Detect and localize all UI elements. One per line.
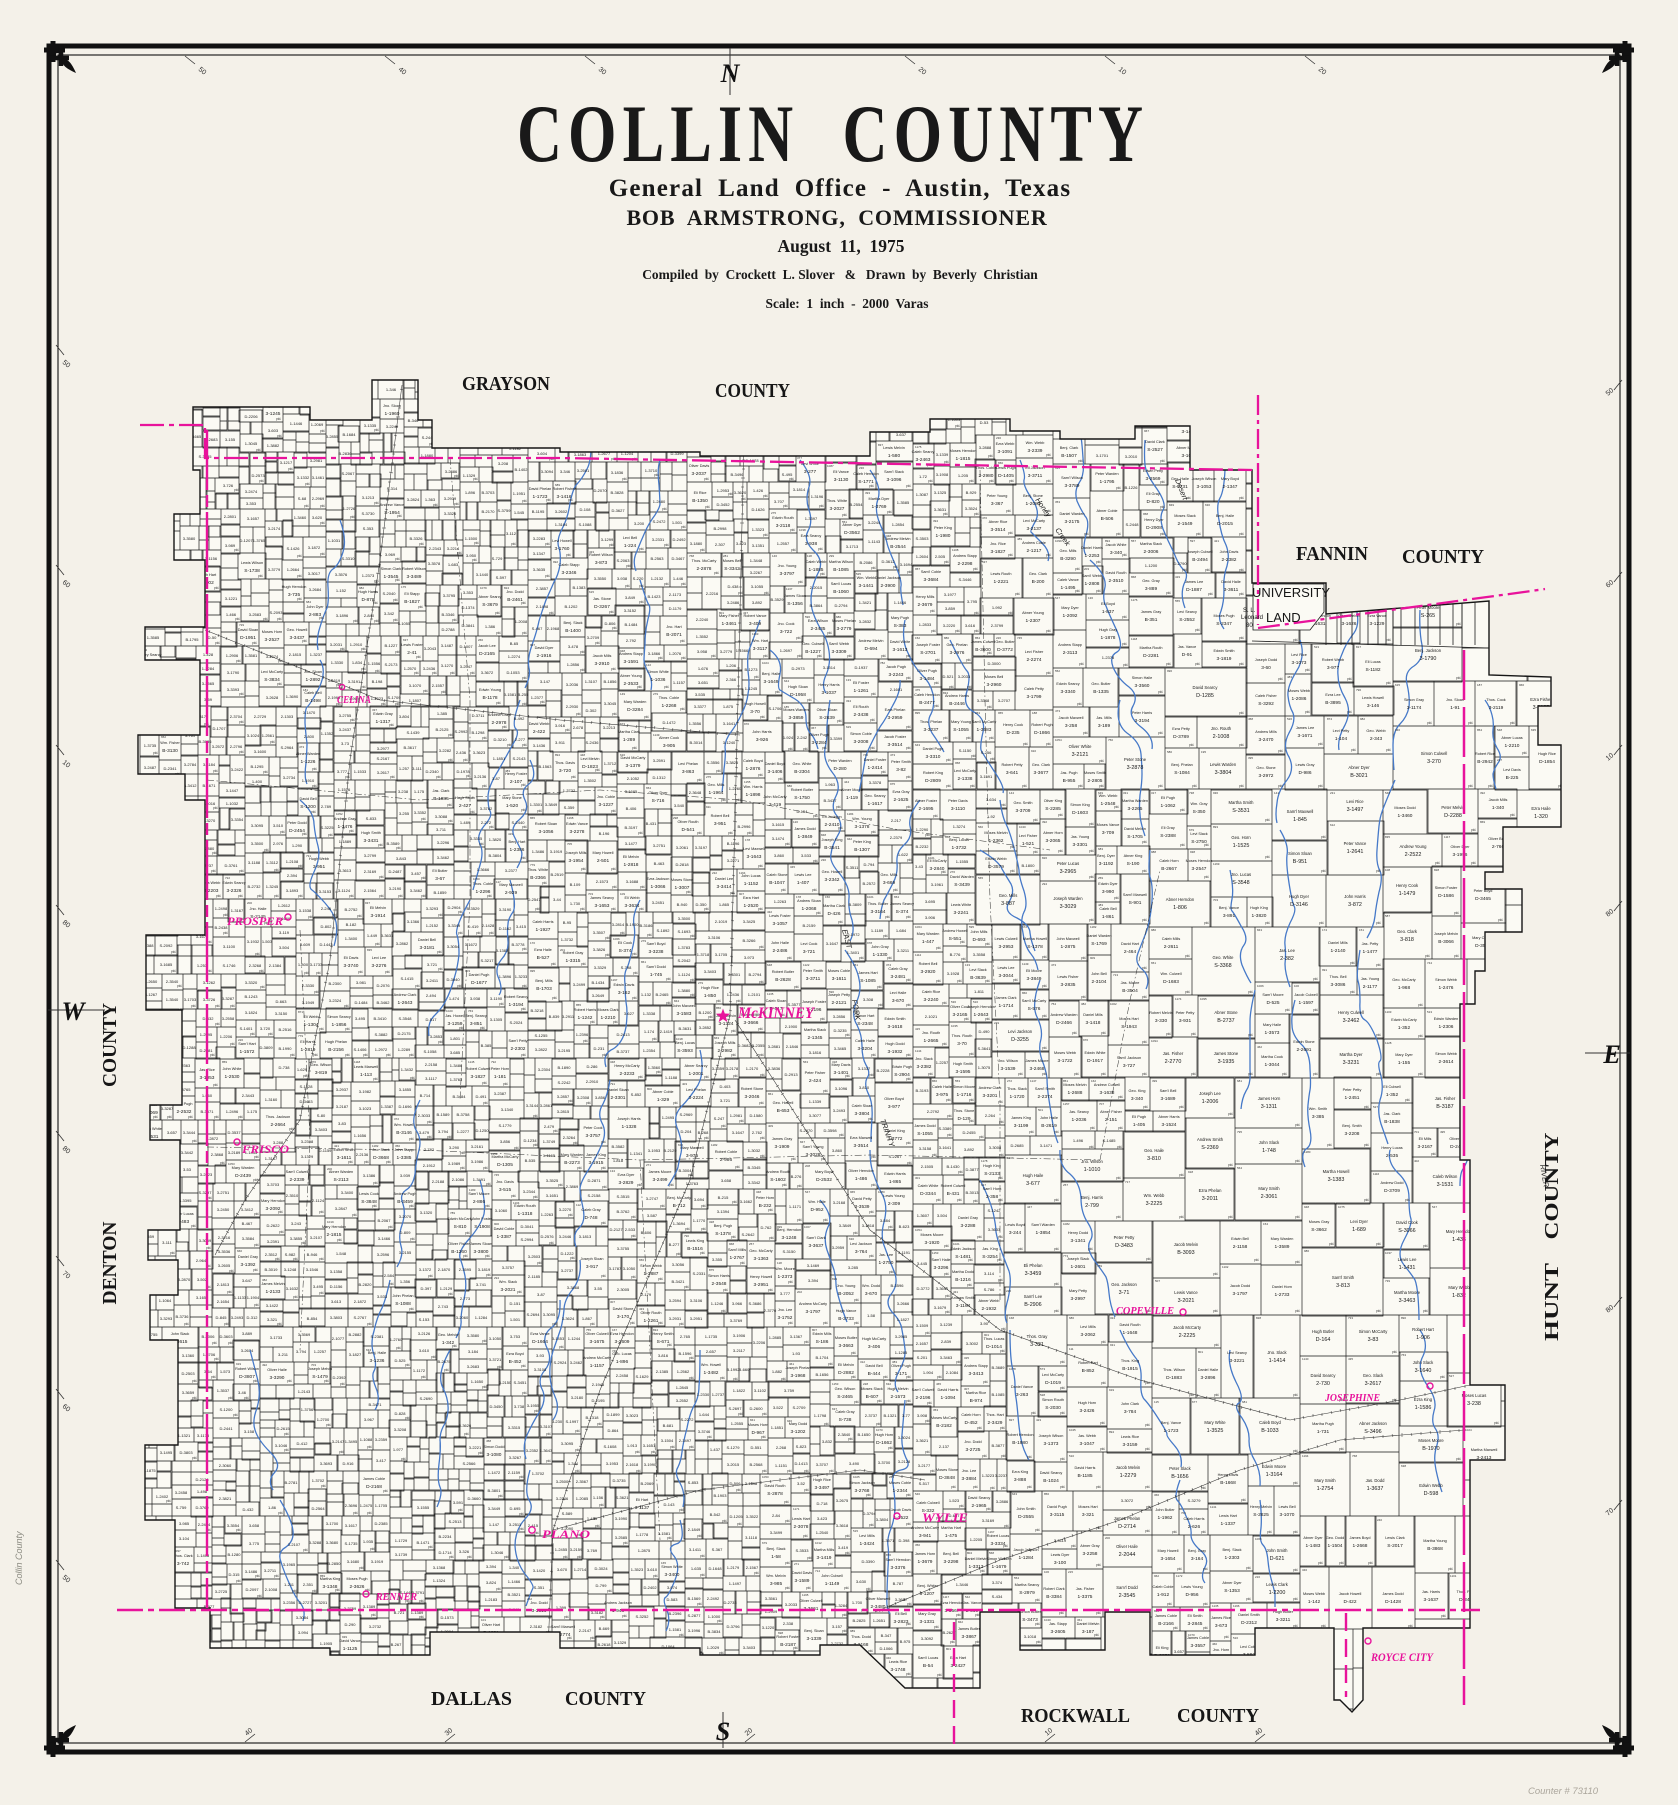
svg-text:Hugh King: Hugh King bbox=[1250, 906, 1268, 910]
svg-text:ptd.: ptd. bbox=[877, 985, 882, 989]
svg-text:D-864: D-864 bbox=[608, 1428, 620, 1433]
svg-text:1-3432: 1-3432 bbox=[401, 1067, 414, 1072]
svg-text:1-1827: 1-1827 bbox=[897, 1317, 910, 1322]
svg-text:ptd.: ptd. bbox=[987, 705, 992, 709]
svg-text:D-432: D-432 bbox=[243, 1507, 255, 1512]
svg-text:B-1402: B-1402 bbox=[515, 467, 529, 472]
svg-text:Jno. Routh: Jno. Routh bbox=[922, 1031, 940, 1035]
svg-text:ptd.: ptd. bbox=[1295, 1260, 1300, 1264]
svg-text:ptd.: ptd. bbox=[253, 1379, 258, 1383]
svg-text:Caleb Fisher: Caleb Fisher bbox=[1255, 694, 1277, 698]
svg-text:3-2331: 3-2331 bbox=[652, 537, 665, 542]
svg-text:ptd.: ptd. bbox=[1116, 1215, 1121, 1219]
svg-text:3-888: 3-888 bbox=[1014, 1477, 1027, 1483]
svg-text:3-3290: 3-3290 bbox=[270, 1375, 285, 1381]
svg-text:Sam'l Maxwell: Sam'l Maxwell bbox=[1123, 893, 1147, 897]
svg-text:3-2426: 3-2426 bbox=[1080, 1408, 1095, 1414]
svg-text:Martha Dyer: Martha Dyer bbox=[869, 497, 891, 501]
svg-text:366: 366 bbox=[1154, 1493, 1159, 1497]
svg-text:ptd.: ptd. bbox=[519, 1527, 524, 1531]
svg-text:1-3607: 1-3607 bbox=[917, 1213, 930, 1218]
svg-text:ptd.: ptd. bbox=[1122, 615, 1127, 619]
svg-text:525: 525 bbox=[856, 572, 861, 576]
svg-text:2-782: 2-782 bbox=[424, 1147, 435, 1152]
svg-text:3-1863: 3-1863 bbox=[574, 452, 587, 457]
svg-text:955: 955 bbox=[998, 711, 1003, 715]
svg-text:B-3006: B-3006 bbox=[202, 1334, 216, 1339]
svg-text:3-3463: 3-3463 bbox=[940, 1355, 953, 1360]
svg-text:1168: 1168 bbox=[567, 816, 574, 820]
svg-text:3-495: 3-495 bbox=[355, 1016, 366, 1021]
svg-text:3-1989: 3-1989 bbox=[448, 1161, 461, 1166]
svg-text:3-1949: 3-1949 bbox=[302, 1000, 315, 1005]
svg-text:ptd.: ptd. bbox=[486, 1273, 491, 1277]
svg-text:3-3320: 3-3320 bbox=[245, 980, 258, 985]
svg-text:3-3211: 3-3211 bbox=[1276, 1617, 1291, 1623]
svg-text:ptd.: ptd. bbox=[937, 1673, 942, 1677]
svg-text:3-3663: 3-3663 bbox=[839, 1343, 854, 1349]
svg-text:3-3557: 3-3557 bbox=[1191, 1643, 1206, 1649]
svg-text:S-823: S-823 bbox=[796, 1444, 807, 1449]
svg-text:D-3450: D-3450 bbox=[489, 1404, 503, 1409]
svg-text:B-2182: B-2182 bbox=[936, 1423, 952, 1429]
svg-text:ptd.: ptd. bbox=[758, 864, 763, 868]
svg-text:Martha Routh: Martha Routh bbox=[1139, 646, 1162, 650]
svg-text:3-905: 3-905 bbox=[663, 743, 676, 749]
svg-text:Benj. Searcy: Benj. Searcy bbox=[465, 1014, 487, 1018]
svg-text:Jno. Sloan: Jno. Sloan bbox=[304, 670, 322, 674]
svg-text:B-2465: B-2465 bbox=[656, 992, 670, 997]
svg-text:3-3580: 3-3580 bbox=[467, 1333, 480, 1338]
svg-text:178: 178 bbox=[745, 838, 750, 842]
svg-text:John Mills: John Mills bbox=[971, 930, 988, 934]
svg-text:3-722: 3-722 bbox=[780, 629, 793, 635]
svg-text:S-759: S-759 bbox=[176, 1505, 187, 1510]
svg-text:ptd.: ptd. bbox=[1213, 1272, 1218, 1276]
svg-text:S-1943: S-1943 bbox=[1121, 1024, 1137, 1030]
svg-text:B-3521: B-3521 bbox=[508, 1592, 522, 1597]
svg-text:Thos. McCarty: Thos. McCarty bbox=[692, 559, 717, 563]
svg-text:Daniel Warden: Daniel Warden bbox=[1087, 934, 1112, 938]
svg-text:Thos. Jackson: Thos. Jackson bbox=[266, 1115, 290, 1119]
svg-text:Mary Boyd: Mary Boyd bbox=[1221, 477, 1239, 481]
svg-text:651: 651 bbox=[1151, 961, 1156, 965]
svg-text:ptd.: ptd. bbox=[534, 1409, 539, 1413]
svg-text:B-1196: B-1196 bbox=[727, 841, 740, 846]
svg-text:3-1420: 3-1420 bbox=[533, 1568, 546, 1573]
svg-text:ptd.: ptd. bbox=[568, 1099, 573, 1103]
svg-text:3-1518: 3-1518 bbox=[862, 1223, 875, 1228]
svg-text:D-419: D-419 bbox=[468, 924, 480, 929]
svg-text:3-342: 3-342 bbox=[384, 611, 395, 616]
svg-text:ptd.: ptd. bbox=[760, 1154, 765, 1158]
svg-text:James Gray: James Gray bbox=[1141, 610, 1162, 614]
svg-text:Caleb Harris: Caleb Harris bbox=[532, 920, 553, 924]
svg-text:Robert Lucas: Robert Lucas bbox=[987, 1534, 1010, 1538]
svg-text:1-174: 1-174 bbox=[644, 1029, 655, 1034]
svg-text:3-290: 3-290 bbox=[449, 1145, 460, 1150]
svg-text:2-792: 2-792 bbox=[626, 638, 637, 643]
svg-text:B-2752: B-2752 bbox=[345, 907, 359, 912]
svg-text:ptd.: ptd. bbox=[759, 980, 764, 984]
svg-text:3-1484: 3-1484 bbox=[920, 676, 935, 682]
svg-text:ptd.: ptd. bbox=[877, 1399, 882, 1403]
svg-text:3-1908: 3-1908 bbox=[936, 472, 949, 477]
svg-text:Jacob Mills: Jacob Mills bbox=[1489, 798, 1508, 802]
svg-text:B-3462: B-3462 bbox=[377, 1000, 391, 1005]
svg-text:Oliver Haile: Oliver Haile bbox=[1116, 1544, 1138, 1549]
svg-text:Robert Hart: Robert Hart bbox=[1078, 1361, 1099, 1365]
svg-text:ptd.: ptd. bbox=[601, 1274, 606, 1278]
svg-text:ptd.: ptd. bbox=[1000, 1349, 1005, 1353]
svg-text:Edwin Smith: Edwin Smith bbox=[884, 1017, 905, 1021]
svg-text:Moses Pugh: Moses Pugh bbox=[346, 1577, 367, 1581]
svg-text:Daniel Boyd: Daniel Boyd bbox=[765, 762, 785, 766]
svg-text:3-1790: 3-1790 bbox=[227, 670, 240, 675]
svg-text:ptd.: ptd. bbox=[339, 1450, 344, 1454]
svg-text:3-2167: 3-2167 bbox=[1418, 1144, 1433, 1150]
svg-text:Abner Moore: Abner Moore bbox=[841, 788, 863, 792]
svg-text:D-2168: D-2168 bbox=[366, 1484, 382, 1490]
svg-text:1-2306: 1-2306 bbox=[1439, 1024, 1454, 1030]
svg-text:1-2263: 1-2263 bbox=[774, 899, 787, 904]
svg-text:3-1080: 3-1080 bbox=[487, 1452, 502, 1458]
svg-text:ptd.: ptd. bbox=[658, 1321, 663, 1325]
svg-text:643: 643 bbox=[915, 743, 920, 747]
svg-text:ptd.: ptd. bbox=[595, 1524, 600, 1528]
svg-text:Abner Young: Abner Young bbox=[1022, 611, 1044, 615]
svg-text:2-464: 2-464 bbox=[1124, 949, 1137, 955]
svg-text:1024: 1024 bbox=[762, 661, 769, 665]
svg-text:S-3593: S-3593 bbox=[677, 1048, 693, 1054]
svg-text:3-3412: 3-3412 bbox=[241, 1207, 254, 1212]
svg-text:ptd.: ptd. bbox=[421, 817, 426, 821]
svg-text:ptd.: ptd. bbox=[521, 783, 526, 787]
svg-text:3-981: 3-981 bbox=[356, 980, 367, 985]
svg-text:1-2008: 1-2008 bbox=[515, 619, 528, 624]
svg-text:D-809: D-809 bbox=[400, 1230, 412, 1235]
svg-text:B-1060: B-1060 bbox=[833, 589, 849, 595]
svg-text:ptd.: ptd. bbox=[213, 1083, 218, 1087]
svg-text:3-2499: 3-2499 bbox=[573, 982, 586, 987]
svg-text:John McCarty: John McCarty bbox=[763, 795, 787, 799]
svg-text:Moses Bell: Moses Bell bbox=[723, 559, 742, 563]
svg-text:D-151: D-151 bbox=[510, 1301, 522, 1306]
svg-text:Jno. Rice: Jno. Rice bbox=[990, 542, 1006, 546]
svg-text:3-3342: 3-3342 bbox=[748, 1180, 761, 1185]
svg-text:Joseph Phelan: Joseph Phelan bbox=[785, 1366, 810, 1370]
svg-text:ptd.: ptd. bbox=[483, 1166, 488, 1170]
svg-text:B-2170: B-2170 bbox=[482, 509, 496, 514]
svg-text:ptd.: ptd. bbox=[1293, 1597, 1298, 1601]
svg-text:ptd.: ptd. bbox=[804, 1488, 809, 1492]
svg-text:3-522: 3-522 bbox=[773, 1405, 784, 1410]
svg-text:3-1797: 3-1797 bbox=[806, 1309, 821, 1315]
svg-text:S-2767: S-2767 bbox=[354, 1315, 368, 1320]
svg-text:D-3809: D-3809 bbox=[259, 1045, 273, 1050]
svg-text:ptd.: ptd. bbox=[489, 825, 494, 829]
svg-text:ptd.: ptd. bbox=[533, 1114, 538, 1118]
svg-text:Sam'l Culwell: Sam'l Culwell bbox=[912, 1388, 935, 1392]
svg-text:2-3737: 2-3737 bbox=[865, 1413, 878, 1418]
svg-text:3-321: 3-321 bbox=[1082, 1512, 1095, 1518]
svg-text:B-2052: B-2052 bbox=[838, 1291, 854, 1297]
svg-text:1-865: 1-865 bbox=[719, 902, 730, 907]
svg-text:1-152: 1-152 bbox=[336, 588, 347, 593]
svg-text:460: 460 bbox=[1212, 1642, 1217, 1646]
svg-text:Geo. Mills: Geo. Mills bbox=[1060, 549, 1077, 553]
svg-text:ptd.: ptd. bbox=[390, 775, 395, 779]
svg-text:1-1815: 1-1815 bbox=[956, 456, 971, 462]
svg-text:3-1368: 3-1368 bbox=[433, 1565, 446, 1570]
svg-text:3-2886: 3-2886 bbox=[996, 1499, 1009, 1504]
svg-text:S-2158: S-2158 bbox=[588, 1193, 602, 1198]
svg-text:D-2714: D-2714 bbox=[1118, 1524, 1136, 1530]
svg-text:698: 698 bbox=[778, 1631, 783, 1635]
svg-text:ptd.: ptd. bbox=[223, 931, 228, 935]
svg-text:3-863: 3-863 bbox=[682, 769, 695, 775]
svg-text:ptd.: ptd. bbox=[293, 1295, 298, 1299]
svg-text:2-1505: 2-1505 bbox=[921, 1164, 934, 1169]
svg-text:1-156: 1-156 bbox=[593, 1495, 604, 1500]
svg-text:3-3514: 3-3514 bbox=[991, 527, 1006, 533]
svg-text:ROCKWALL: ROCKWALL bbox=[1021, 1705, 1130, 1727]
svg-text:D-3682: D-3682 bbox=[737, 1043, 751, 1048]
svg-text:970: 970 bbox=[744, 722, 749, 726]
svg-text:ptd.: ptd. bbox=[1166, 591, 1171, 595]
svg-text:ptd.: ptd. bbox=[1075, 567, 1080, 571]
svg-text:D-2076: D-2076 bbox=[376, 983, 390, 988]
svg-text:1-3315: 1-3315 bbox=[566, 958, 581, 964]
svg-text:David Searcy: David Searcy bbox=[1311, 1373, 1337, 1378]
svg-text:2-3119: 2-3119 bbox=[1054, 1538, 1067, 1543]
svg-text:1178: 1178 bbox=[981, 1159, 988, 1163]
svg-text:B-714: B-714 bbox=[420, 1093, 431, 1098]
svg-text:Abner Lucas: Abner Lucas bbox=[1501, 736, 1522, 740]
svg-text:1087: 1087 bbox=[827, 464, 834, 468]
svg-text:3-720: 3-720 bbox=[559, 768, 572, 774]
svg-text:Daniel Harris: Daniel Harris bbox=[1081, 546, 1103, 550]
svg-text:1053: 1053 bbox=[228, 1162, 235, 1166]
svg-text:ptd.: ptd. bbox=[575, 1448, 580, 1452]
svg-text:Ezra Hart: Ezra Hart bbox=[743, 896, 760, 900]
svg-text:3-3403: 3-3403 bbox=[743, 1645, 756, 1650]
svg-text:D-2622: D-2622 bbox=[266, 1223, 280, 1228]
svg-text:3-658: 3-658 bbox=[249, 1523, 260, 1528]
svg-text:Mary Stone: Mary Stone bbox=[502, 796, 521, 800]
svg-text:Jas. Howell: Jas. Howell bbox=[445, 1014, 465, 1018]
svg-text:B-2628: B-2628 bbox=[775, 977, 791, 983]
svg-text:3-2881: 3-2881 bbox=[768, 1044, 781, 1049]
svg-text:3-2015: 3-2015 bbox=[727, 1462, 740, 1467]
svg-text:ptd.: ptd. bbox=[254, 1212, 259, 1216]
svg-text:2-1601: 2-1601 bbox=[890, 687, 903, 692]
svg-text:Caleb Rice: Caleb Rice bbox=[922, 990, 941, 994]
svg-text:3-3211: 3-3211 bbox=[897, 948, 910, 953]
svg-text:Joseph Foster: Joseph Foster bbox=[802, 1000, 827, 1004]
svg-text:3-1813: 3-1813 bbox=[579, 1234, 592, 1239]
svg-text:D-2070: D-2070 bbox=[593, 488, 607, 493]
svg-text:421: 421 bbox=[1214, 539, 1219, 543]
svg-text:2-3567: 2-3567 bbox=[576, 1479, 589, 1484]
svg-text:ptd.: ptd. bbox=[235, 617, 240, 621]
svg-text:1-3525: 1-3525 bbox=[1207, 1428, 1224, 1434]
svg-text:3-2493: 3-2493 bbox=[231, 1315, 244, 1320]
svg-text:ptd.: ptd. bbox=[759, 1053, 764, 1057]
svg-text:ptd.: ptd. bbox=[421, 894, 426, 898]
svg-text:1-2221: 1-2221 bbox=[994, 579, 1009, 585]
svg-text:1128: 1128 bbox=[1385, 1041, 1392, 1045]
svg-text:2-1419: 2-1419 bbox=[660, 1029, 673, 1034]
svg-text:Edwin Petty: Edwin Petty bbox=[1143, 469, 1163, 473]
svg-text:ptd.: ptd. bbox=[697, 1602, 702, 1606]
svg-text:1-2223: 1-2223 bbox=[371, 696, 384, 701]
svg-text:3-3623: 3-3623 bbox=[473, 750, 486, 755]
svg-text:ptd.: ptd. bbox=[1029, 1130, 1034, 1134]
svg-text:ptd.: ptd. bbox=[1142, 1072, 1147, 1076]
svg-text:1-1951: 1-1951 bbox=[513, 491, 526, 496]
svg-text:2-1217: 2-1217 bbox=[1027, 548, 1042, 554]
svg-text:3-104: 3-104 bbox=[179, 1536, 190, 1541]
svg-text:1-3712: 1-3712 bbox=[604, 761, 617, 766]
svg-text:ptd.: ptd. bbox=[1058, 813, 1063, 817]
svg-text:ptd.: ptd. bbox=[1441, 1614, 1446, 1618]
svg-text:2-264: 2-264 bbox=[985, 1113, 996, 1118]
svg-text:ptd.: ptd. bbox=[1118, 1095, 1123, 1099]
svg-text:B-3345: B-3345 bbox=[748, 1165, 762, 1170]
svg-text:D-490: D-490 bbox=[979, 1029, 991, 1034]
svg-text:1-2697: 1-2697 bbox=[780, 648, 793, 653]
svg-text:3-738: 3-738 bbox=[514, 1404, 525, 1409]
svg-text:3-1339: 3-1339 bbox=[936, 452, 949, 457]
svg-text:James Butler: James Butler bbox=[958, 1627, 981, 1631]
svg-text:1-684: 1-684 bbox=[896, 928, 907, 933]
svg-text:3-1982: 3-1982 bbox=[359, 1089, 372, 1094]
svg-text:3-2856: 3-2856 bbox=[833, 1014, 846, 1019]
svg-text:ptd.: ptd. bbox=[367, 1511, 372, 1515]
svg-text:Jacob Melvin: Jacob Melvin bbox=[1174, 1242, 1199, 1247]
svg-text:3-709: 3-709 bbox=[1102, 830, 1115, 836]
svg-text:ptd.: ptd. bbox=[312, 767, 317, 771]
svg-text:3-2107: 3-2107 bbox=[288, 1542, 301, 1547]
svg-text:3-810: 3-810 bbox=[1147, 1156, 1161, 1162]
svg-text:ptd.: ptd. bbox=[944, 560, 949, 564]
svg-text:1-2854: 1-2854 bbox=[892, 522, 905, 527]
svg-text:3-2352: 3-2352 bbox=[526, 1448, 539, 1453]
svg-text:ptd.: ptd. bbox=[215, 1022, 220, 1026]
svg-text:Martha Howell: Martha Howell bbox=[1323, 1169, 1350, 1174]
svg-text:ptd.: ptd. bbox=[1114, 896, 1119, 900]
svg-text:3-1827: 3-1827 bbox=[991, 549, 1006, 555]
svg-text:Moses Gray: Moses Gray bbox=[1309, 1220, 1330, 1224]
svg-text:D-2392: D-2392 bbox=[332, 1375, 346, 1380]
svg-text:ptd.: ptd. bbox=[277, 617, 282, 621]
svg-text:2-3614: 2-3614 bbox=[1439, 1059, 1454, 1065]
svg-text:B-182: B-182 bbox=[346, 922, 357, 927]
svg-text:3-3826: 3-3826 bbox=[593, 947, 606, 952]
svg-text:1-1328: 1-1328 bbox=[622, 1124, 637, 1130]
svg-text:3-1447: 3-1447 bbox=[226, 788, 239, 793]
svg-text:ptd.: ptd. bbox=[986, 1507, 991, 1511]
svg-text:Andrew Routh: Andrew Routh bbox=[766, 1170, 790, 1174]
svg-text:Simon Foster: Simon Foster bbox=[1435, 886, 1458, 890]
svg-text:ptd.: ptd. bbox=[496, 1587, 501, 1591]
svg-text:492: 492 bbox=[262, 1363, 267, 1367]
svg-text:D-3772: D-3772 bbox=[997, 647, 1013, 653]
svg-text:3-3711: 3-3711 bbox=[1028, 473, 1043, 479]
svg-text:James Clark: James Clark bbox=[995, 996, 1016, 1000]
svg-text:ptd.: ptd. bbox=[480, 1026, 485, 1030]
svg-text:Eli Gray: Eli Gray bbox=[1161, 826, 1175, 830]
svg-text:Edwin Dyer: Edwin Dyer bbox=[1098, 882, 1118, 886]
svg-text:ptd.: ptd. bbox=[969, 479, 974, 483]
svg-text:3-1893: 3-1893 bbox=[286, 888, 299, 893]
svg-text:3-1531: 3-1531 bbox=[1437, 1182, 1454, 1188]
svg-text:Mary Haile: Mary Haile bbox=[1263, 1023, 1281, 1027]
svg-text:Benj. Smith: Benj. Smith bbox=[1342, 1124, 1361, 1128]
svg-text:3-164: 3-164 bbox=[1191, 1556, 1204, 1562]
svg-text:D-762: D-762 bbox=[761, 1225, 773, 1230]
svg-text:ptd.: ptd. bbox=[478, 1451, 483, 1455]
svg-text:3-1110: 3-1110 bbox=[951, 806, 966, 812]
svg-text:3-587: 3-587 bbox=[647, 1213, 658, 1218]
svg-text:HUNT: HUNT bbox=[1541, 1262, 1563, 1341]
svg-text:ptd.: ptd. bbox=[1046, 553, 1051, 557]
svg-text:B-3187: B-3187 bbox=[1436, 1104, 1453, 1110]
svg-text:Martha Rice: Martha Rice bbox=[966, 1391, 986, 1395]
svg-text:B-431: B-431 bbox=[947, 1191, 960, 1197]
svg-text:D-108: D-108 bbox=[580, 507, 592, 512]
svg-text:ptd.: ptd. bbox=[601, 1140, 606, 1144]
svg-text:ptd.: ptd. bbox=[626, 564, 631, 568]
svg-text:3-3309: 3-3309 bbox=[832, 649, 847, 655]
svg-text:903: 903 bbox=[465, 969, 470, 973]
svg-text:1-3233: 1-3233 bbox=[515, 974, 528, 979]
svg-text:B-1900: B-1900 bbox=[626, 922, 640, 927]
svg-text:1-449: 1-449 bbox=[367, 933, 378, 938]
svg-text:3-346: 3-346 bbox=[560, 469, 571, 474]
svg-text:S-1997: S-1997 bbox=[566, 1419, 580, 1424]
svg-text:1145: 1145 bbox=[468, 1060, 475, 1064]
svg-text:ptd.: ptd. bbox=[868, 1649, 873, 1653]
svg-text:ptd.: ptd. bbox=[1060, 1360, 1065, 1364]
svg-text:D-164: D-164 bbox=[1316, 1337, 1331, 1343]
svg-text:122: 122 bbox=[646, 663, 651, 667]
svg-text:ptd.: ptd. bbox=[340, 647, 345, 651]
svg-text:2-137: 2-137 bbox=[939, 1444, 950, 1449]
svg-text:D-551: D-551 bbox=[751, 1445, 763, 1450]
svg-text:259: 259 bbox=[1098, 876, 1103, 880]
svg-text:1-2143: 1-2143 bbox=[298, 1389, 311, 1394]
svg-text:3-1383: 3-1383 bbox=[496, 948, 509, 953]
svg-text:Joseph Foster: Joseph Foster bbox=[916, 643, 941, 647]
svg-text:ptd.: ptd. bbox=[1099, 784, 1104, 788]
svg-text:1-346: 1-346 bbox=[386, 387, 397, 392]
svg-text:230: 230 bbox=[821, 858, 826, 862]
svg-text:ptd.: ptd. bbox=[564, 1615, 569, 1619]
svg-text:552: 552 bbox=[1055, 669, 1060, 673]
svg-text:ptd.: ptd. bbox=[977, 1235, 982, 1239]
svg-text:ptd.: ptd. bbox=[260, 985, 265, 989]
svg-text:1141: 1141 bbox=[1210, 1505, 1217, 1509]
svg-text:ptd.: ptd. bbox=[969, 1119, 974, 1123]
svg-text:Levi Rice: Levi Rice bbox=[1346, 799, 1364, 804]
svg-text:2-3060: 2-3060 bbox=[219, 1463, 232, 1468]
svg-text:3-71: 3-71 bbox=[1119, 1290, 1130, 1296]
svg-text:ptd.: ptd. bbox=[700, 1251, 705, 1255]
svg-text:ptd.: ptd. bbox=[482, 1339, 487, 1343]
svg-text:3-1733: 3-1733 bbox=[270, 1335, 283, 1340]
